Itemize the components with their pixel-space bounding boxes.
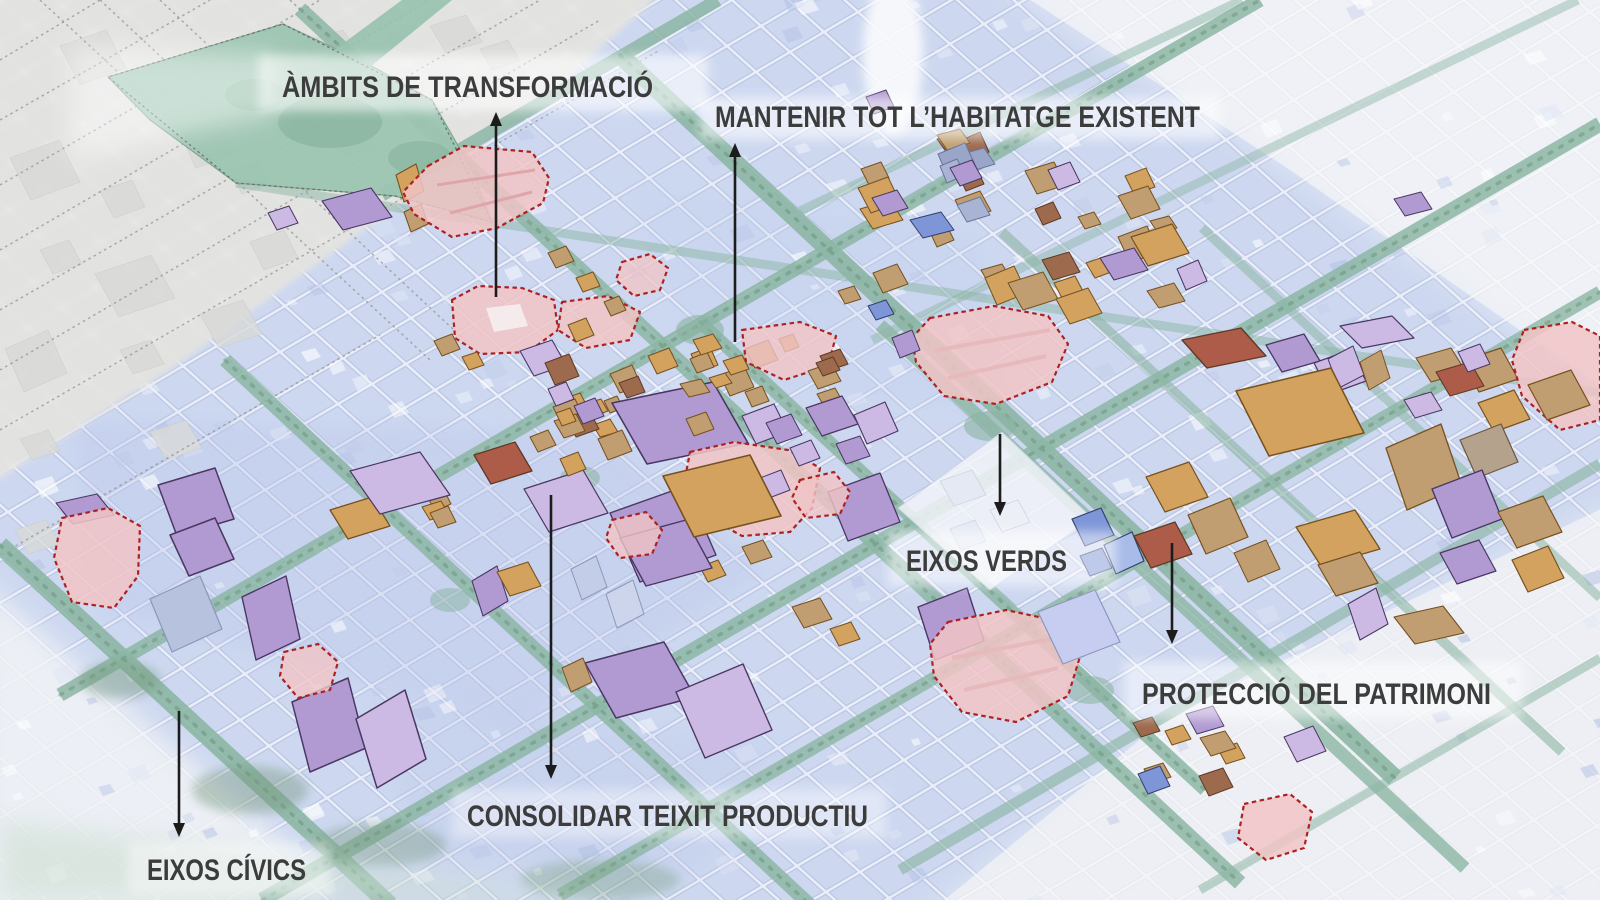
svg-text:EIXOS VERDS: EIXOS VERDS [906, 545, 1067, 578]
svg-text:ÀMBITS DE TRANSFORMACIÓ: ÀMBITS DE TRANSFORMACIÓ [282, 70, 653, 104]
svg-text:EIXOS CÍVICS: EIXOS CÍVICS [147, 853, 306, 887]
svg-text:MANTENIR TOT L’HABITATGE EXIST: MANTENIR TOT L’HABITATGE EXISTENT [715, 101, 1200, 134]
svg-text:CONSOLIDAR TEIXIT PRODUCTIU: CONSOLIDAR TEIXIT PRODUCTIU [467, 800, 868, 833]
svg-text:PROTECCIÓ DEL PATRIMONI: PROTECCIÓ DEL PATRIMONI [1142, 677, 1491, 711]
